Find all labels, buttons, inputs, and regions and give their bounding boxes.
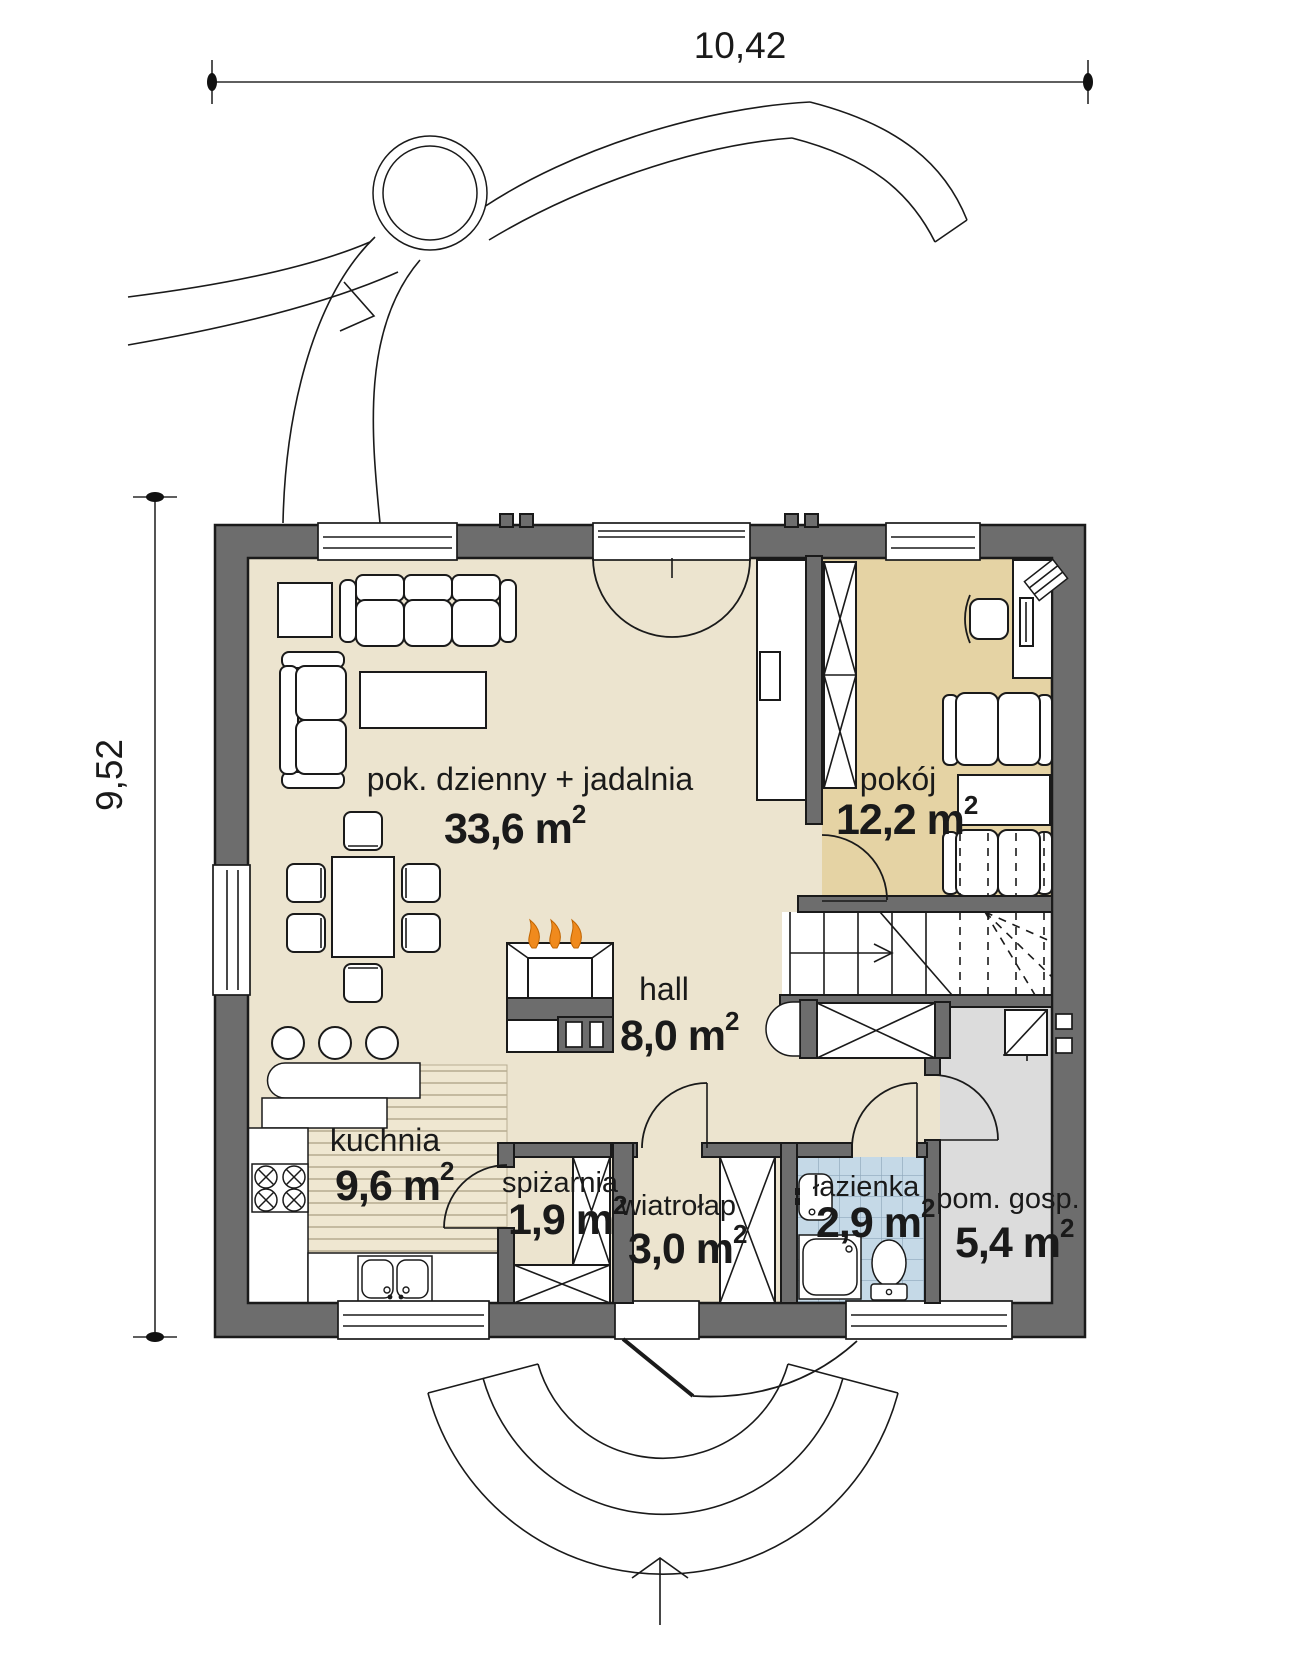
area-pomgosp: 5,4 m2 [955, 1213, 1074, 1267]
label-pokoj: pokój [860, 761, 937, 797]
wall-wiatrolap-top-right [702, 1143, 781, 1157]
window-pokoj-top [886, 523, 980, 560]
desk-chair [965, 595, 1008, 643]
understair-closet [817, 1003, 935, 1058]
sofa-pokoj-top [943, 693, 1052, 765]
window-bottom-right [846, 1301, 1012, 1339]
window-living-top [318, 523, 457, 560]
sofa-two-seat-left [280, 652, 346, 788]
boiler-icon [1003, 1010, 1047, 1061]
dimension-top: 10,42 [207, 25, 1093, 104]
wall-closet-left [800, 1000, 817, 1058]
tv-cabinet [757, 560, 806, 800]
area-pokoj: 12,2 m2 [836, 790, 978, 844]
label-spizarnia: spiżarnia [502, 1167, 619, 1199]
label-wiatrolap: wiatrołap [619, 1190, 736, 1222]
kitchen-counter-left [248, 1128, 308, 1303]
wall-stairs-top [798, 896, 1052, 912]
dimension-width: 10,42 [694, 25, 787, 66]
toilet-icon [871, 1240, 907, 1300]
window-living-left [213, 865, 250, 995]
side-terrace-arc [792, 102, 967, 242]
label-kuchnia: kuchnia [330, 1122, 441, 1158]
wardrobe-pokoj [824, 562, 856, 788]
label-hall: hall [639, 971, 689, 1007]
side-table [278, 583, 332, 637]
area-kuchnia: 9,6 m2 [335, 1156, 454, 1210]
dimension-height: 9,52 [89, 739, 130, 811]
label-pomgosp: pom. gosp. [936, 1183, 1079, 1215]
wall-bathroom-top-right [917, 1143, 927, 1157]
dining-table [332, 857, 394, 957]
dimension-left: 9,52 [89, 492, 177, 1342]
wall-living-pokoj [806, 556, 822, 824]
cooktop-icon [252, 1164, 308, 1212]
area-wiatrolap: 3,0 m2 [628, 1219, 747, 1273]
coffee-table [360, 672, 486, 728]
area-living: 33,6 m2 [444, 799, 586, 853]
kitchen-sink-icon [358, 1256, 432, 1302]
walkway-circle-landing [373, 136, 487, 250]
area-lazienka: 2,9 m2 [816, 1193, 935, 1247]
entrance-direction-arrow-icon [632, 1558, 688, 1625]
label-living: pok. dzienny + jadalnia [367, 761, 694, 797]
area-spizarnia: 1,9 m2 [508, 1190, 627, 1244]
entrance-steps [428, 1364, 898, 1625]
wall-spizarnia-left-upper [498, 1143, 514, 1167]
area-hall: 8,0 m2 [620, 1006, 739, 1060]
sofa-three-seat [340, 575, 516, 646]
wall-bathroom-left [781, 1143, 797, 1303]
floor-plan-drawing: pok. dzienny + jadalnia 33,6 m2 pokój 12… [0, 0, 1300, 1657]
window-kitchen-bottom [338, 1301, 489, 1339]
bar-stools [272, 1027, 398, 1059]
floor-plan-page: pok. dzienny + jadalnia 33,6 m2 pokój 12… [0, 0, 1300, 1657]
wall-closet-right [935, 1002, 950, 1058]
